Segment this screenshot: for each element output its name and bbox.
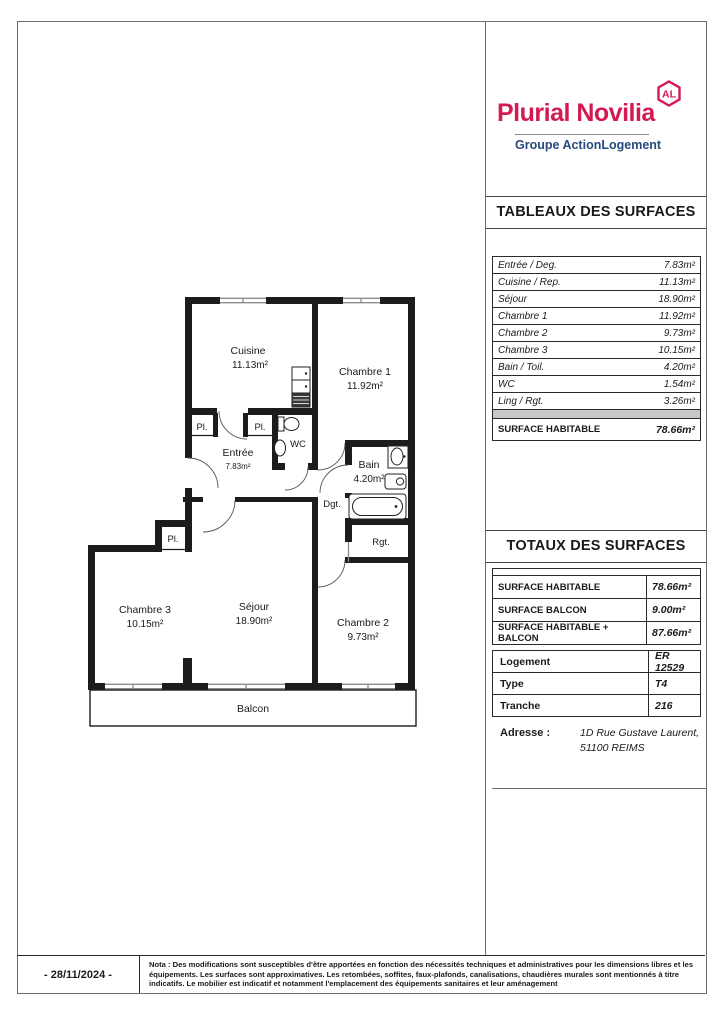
closet-label: Pl. — [167, 534, 178, 545]
totaux-table-title: TOTAUX DES SURFACES — [486, 530, 706, 563]
closet-label: Pl. — [196, 422, 207, 433]
table-row: Logement ER 12529 — [493, 651, 700, 673]
address-label: Adresse : — [500, 727, 550, 739]
svg-text:18.90m²: 18.90m² — [236, 616, 273, 627]
table-row: WC1.54m² — [493, 376, 700, 393]
toilet-icon — [278, 417, 299, 431]
table-row: SURFACE BALCON 9.00m² — [493, 599, 700, 622]
wc-sink-icon — [274, 440, 286, 456]
room-label-chambre2: Chambre 2 — [337, 617, 389, 629]
totaux-table: SURFACE HABITABLE 78.66m² SURFACE BALCON… — [492, 568, 701, 645]
table-row: Chambre 29.73m² — [493, 325, 700, 342]
room-label-rgt: Rgt. — [372, 537, 389, 548]
closet-label: Pl. — [254, 422, 265, 433]
table-spacer — [493, 410, 700, 419]
column-divider — [485, 21, 486, 956]
room-label-cuisine: Cuisine — [230, 345, 265, 357]
bathtub-icon — [349, 494, 406, 519]
table-row: Type T4 — [493, 673, 700, 695]
surfaces-table: Entrée / Deg.7.83m² Cuisine / Rep.11.13m… — [492, 256, 701, 441]
svg-text:11.13m²: 11.13m² — [232, 360, 269, 371]
surface-habitable-row: SURFACE HABITABLE 78.66m² — [493, 419, 700, 440]
washing-machine-icon — [385, 474, 406, 489]
bathroom-sink-icon — [388, 446, 408, 468]
table-header-strip — [493, 569, 700, 576]
table-row: Entrée / Deg.7.83m² — [493, 257, 700, 274]
svg-text:10.15m²: 10.15m² — [127, 619, 164, 630]
table-row: Bain / Toil.4.20m² — [493, 359, 700, 376]
kitchen-unit-icon — [292, 367, 310, 407]
svg-text:11.92m²: 11.92m² — [347, 381, 384, 392]
table-row: Tranche 216 — [493, 695, 700, 716]
svg-text:9.73m²: 9.73m² — [347, 632, 379, 643]
al-hexagon-icon: AL — [657, 80, 681, 112]
logo: Plurial Novilia AL Groupe ActionLogement — [497, 80, 697, 152]
room-label-bain: Bain — [358, 459, 379, 471]
plan-date: - 28/11/2024 - — [17, 956, 139, 993]
floor-plan: Cuisine 11.13m² Chambre 1 11.92m² Entrée… — [85, 290, 430, 735]
surfaces-table-title: TABLEAUX DES SURFACES — [486, 196, 706, 229]
footer-note: Nota : Des modifications sont susceptibl… — [139, 956, 705, 993]
logo-subtitle: Groupe ActionLogement — [515, 138, 697, 152]
table-row: Séjour18.90m² — [493, 291, 700, 308]
balcony-label: Balcon — [237, 703, 269, 715]
table-row: Cuisine / Rep.11.13m² — [493, 274, 700, 291]
svg-text:4.20m²: 4.20m² — [353, 474, 385, 485]
logo-divider-line — [515, 134, 649, 135]
address-value: 1D Rue Gustave Laurent, 51100 REIMS — [580, 726, 699, 756]
footer: - 28/11/2024 - Nota : Des modifications … — [17, 955, 705, 993]
table-row: Ling / Rgt.3.26m² — [493, 393, 700, 410]
table-row: SURFACE HABITABLE + BALCON 87.66m² — [493, 622, 700, 644]
address-block: Adresse : 1D Rue Gustave Laurent, 51100 … — [492, 714, 706, 789]
logement-info-table: Logement ER 12529 Type T4 Tranche 216 — [492, 650, 701, 717]
table-row: Chambre 310.15m² — [493, 342, 700, 359]
room-label-sejour: Séjour — [239, 601, 270, 613]
room-label-wc: WC — [290, 439, 306, 450]
brand-name: Plurial Novilia — [497, 99, 655, 127]
svg-text:AL: AL — [662, 89, 677, 101]
table-row: Chambre 111.92m² — [493, 308, 700, 325]
room-label-chambre3: Chambre 3 — [119, 604, 171, 616]
table-row: SURFACE HABITABLE 78.66m² — [493, 576, 700, 599]
room-label-chambre1: Chambre 1 — [339, 366, 391, 378]
room-label-entree: Entrée — [223, 447, 254, 459]
room-label-dgt: Dgt. — [323, 499, 340, 510]
svg-text:7.83m²: 7.83m² — [226, 462, 251, 471]
